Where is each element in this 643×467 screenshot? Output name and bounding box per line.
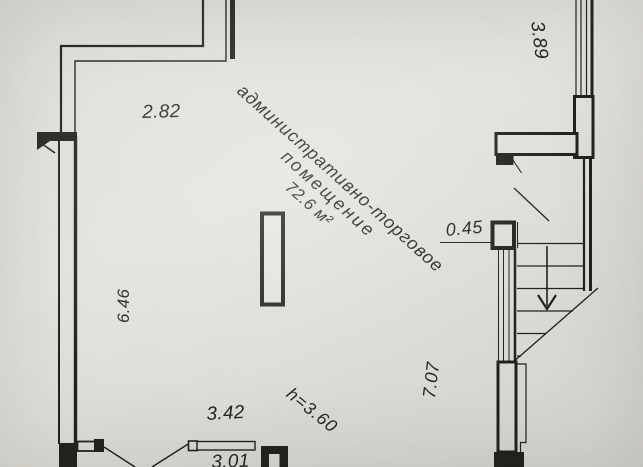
dimension-bottom-opening: 3.42 xyxy=(206,403,245,424)
wall-stub-bottom xyxy=(261,446,288,467)
wall-corner xyxy=(59,443,77,467)
wall-right-upper xyxy=(496,97,593,174)
door-swing-right xyxy=(152,444,189,467)
door-swing-left xyxy=(104,447,135,467)
wall-left xyxy=(37,132,77,444)
dimension-bottom-clipped: 3.01 xyxy=(211,452,250,467)
stair-break-line xyxy=(514,188,549,221)
column-rectangle xyxy=(262,214,283,305)
dimension-left-wall: 6.46 xyxy=(115,289,132,323)
door-jamb-right xyxy=(189,441,198,451)
dimension-pillar: 0.45 xyxy=(445,218,483,239)
dimension-right-wall: 7.07 xyxy=(420,361,442,399)
stair-break-line xyxy=(516,288,599,360)
door-bottom-left xyxy=(59,439,198,467)
dimension-top-wall: 2.82 xyxy=(142,102,181,122)
dimension-window-right: 3.89 xyxy=(527,20,551,60)
door-jamb-cap xyxy=(94,439,104,452)
floor-plan-drawing xyxy=(0,0,643,467)
window-bottom-partition xyxy=(197,442,255,451)
window-top-right xyxy=(576,0,592,97)
wall-right-lower xyxy=(494,362,526,467)
wall-step-flag xyxy=(37,132,77,150)
floorplan-photo: 2.82 административно-торговое помещение … xyxy=(0,0,643,467)
stairs-down-arrow-icon xyxy=(538,246,556,309)
staircase xyxy=(499,159,599,362)
door-jamb-left xyxy=(78,442,97,452)
